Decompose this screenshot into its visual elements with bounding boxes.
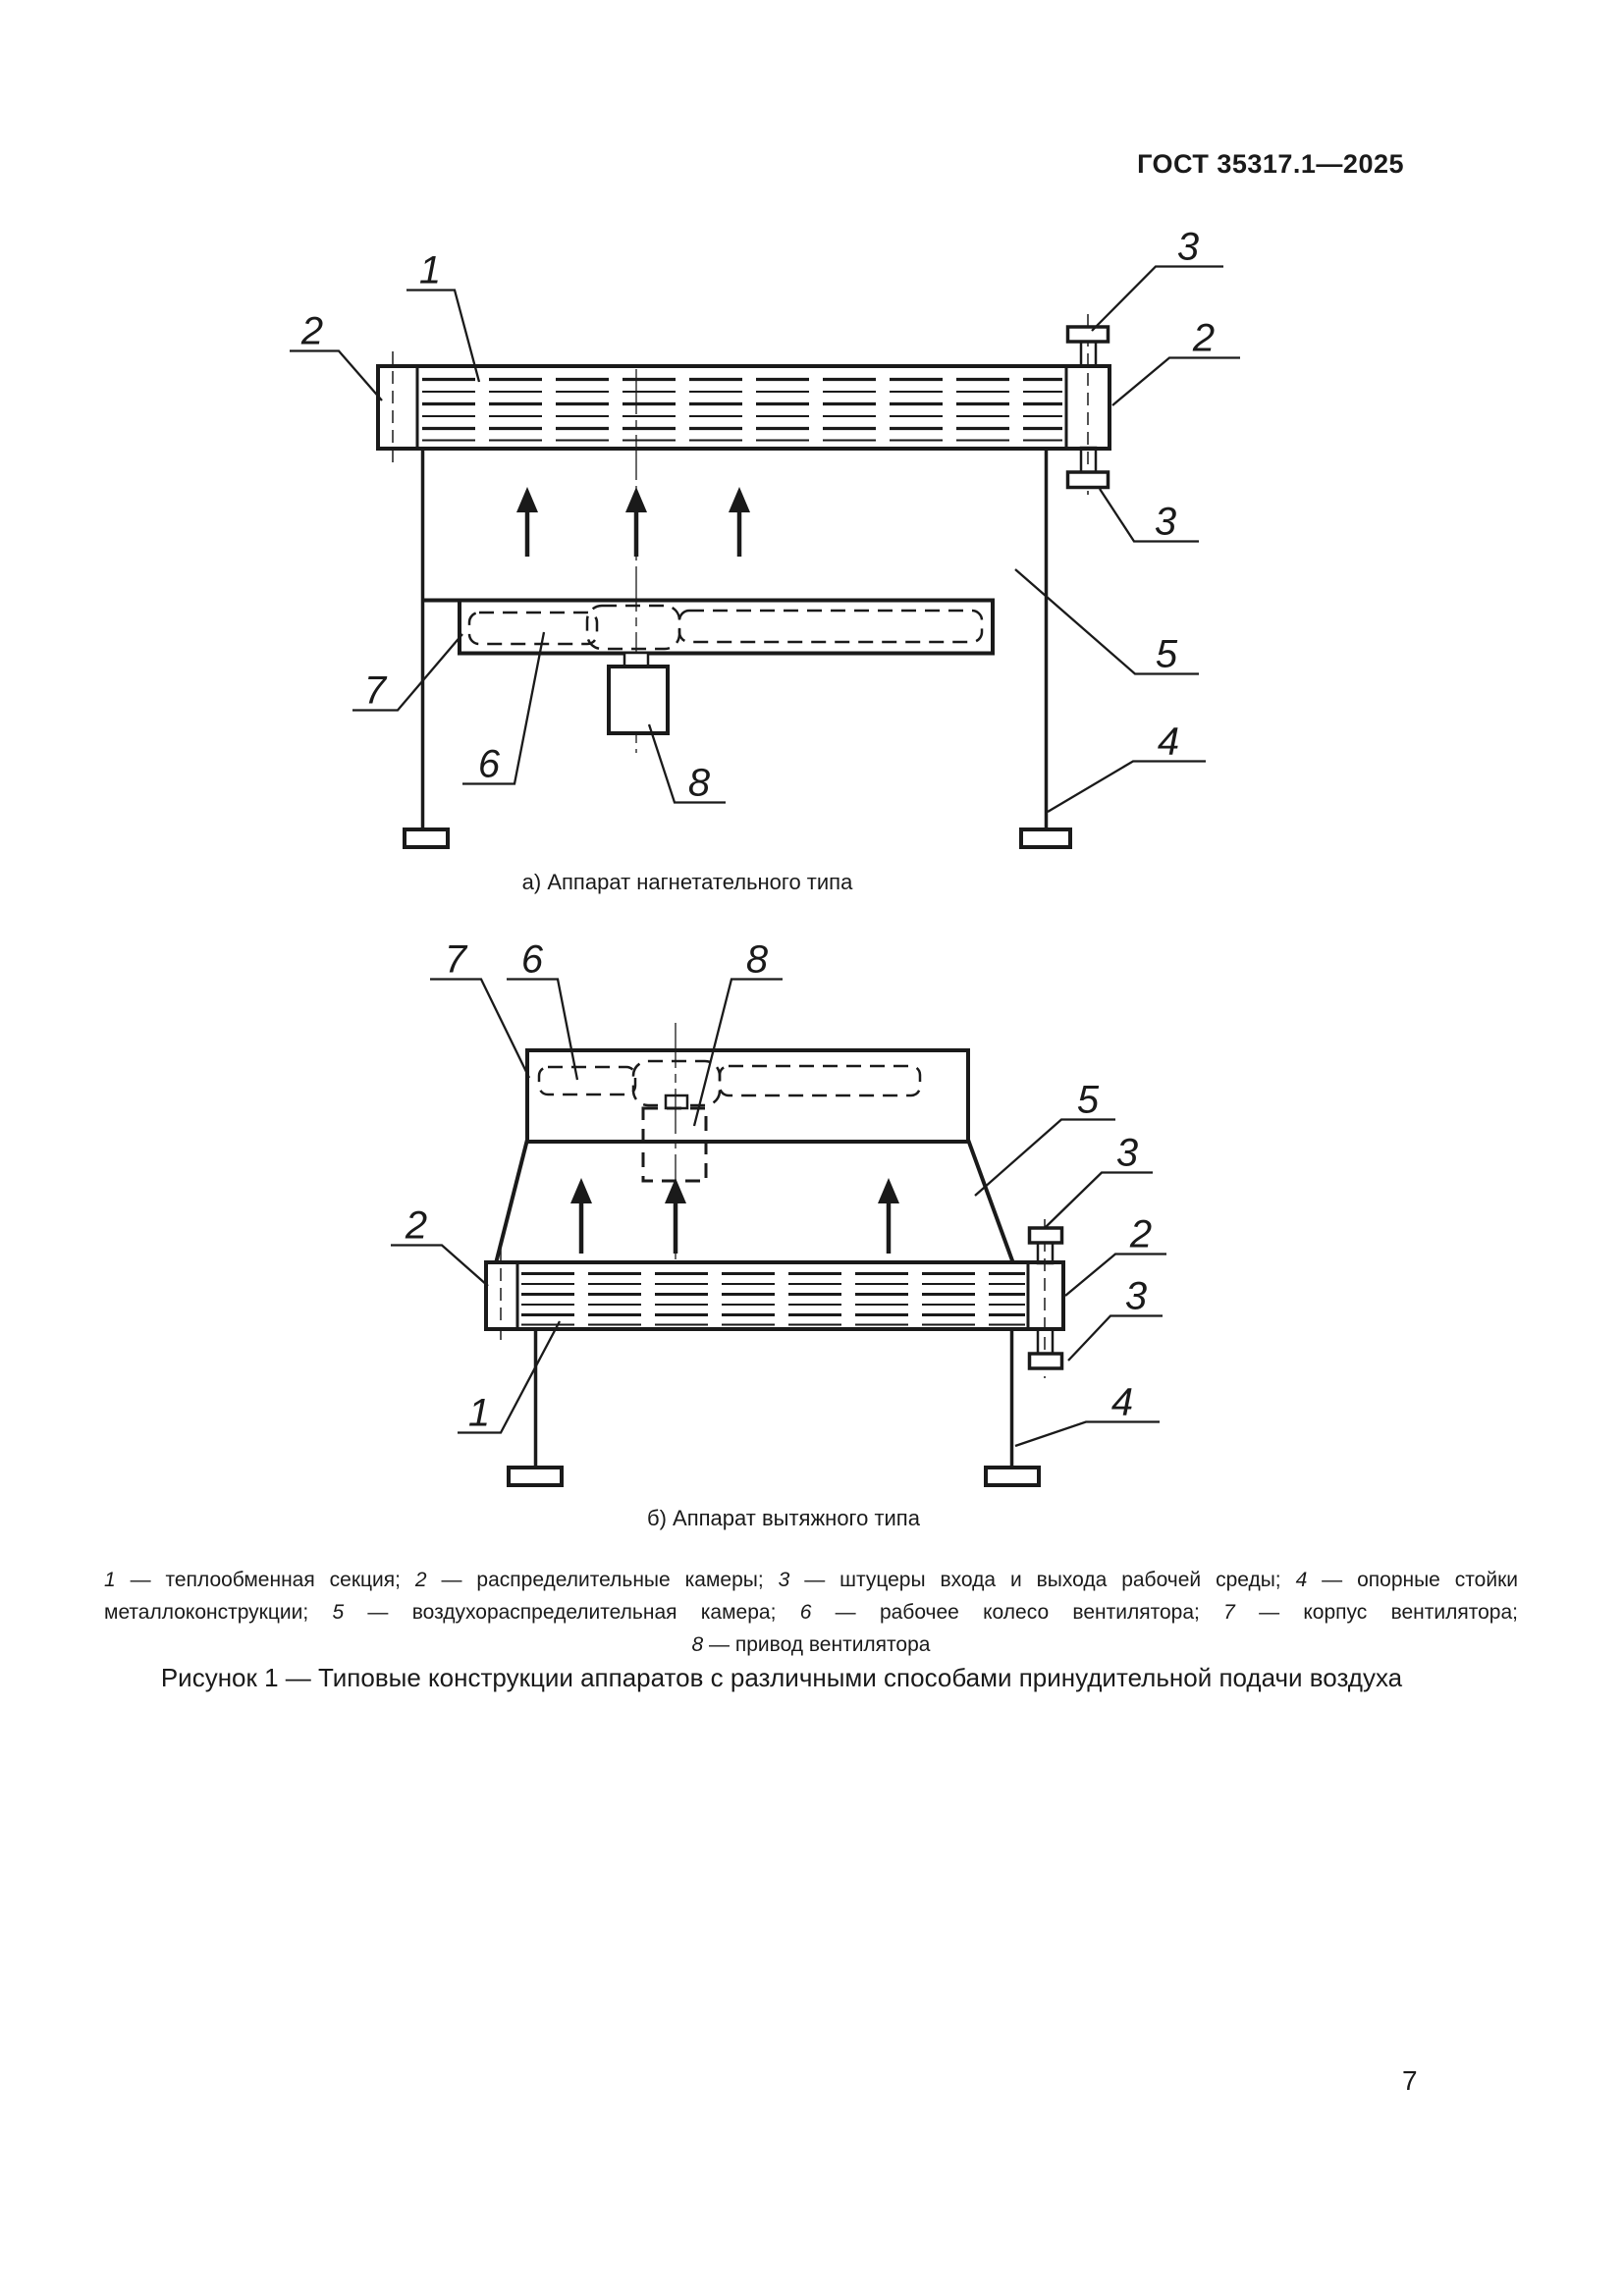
figure-legend: 1 — теплообменная секция; 2 — распредели… bbox=[104, 1564, 1518, 1661]
airflow-arrows bbox=[516, 487, 750, 557]
callout-3-bottom-nozzle: 3 bbox=[1155, 501, 1176, 544]
callout-3-bottom-nozzle: 3 bbox=[1125, 1275, 1147, 1318]
legend-ref-num: 5 bbox=[332, 1601, 344, 1624]
top-nozzle-flange bbox=[1068, 327, 1109, 342]
legend-ref-num: 8 bbox=[692, 1633, 704, 1656]
callout-5-air-chamber: 5 bbox=[1077, 1079, 1100, 1122]
figure-1-diagrams: 1 2 3 2 3 5 4 7 6 8 bbox=[0, 0, 1624, 2296]
drive-coupling bbox=[666, 1095, 687, 1108]
left-foot-pad bbox=[405, 829, 448, 847]
fan-wheel bbox=[469, 606, 982, 649]
callout-leaders-a bbox=[290, 267, 1240, 813]
legend-line-1: 1 — теплообменная секция; 2 — распредели… bbox=[104, 1564, 1518, 1596]
legend-ref-text: — воздухораспределительная камера; bbox=[344, 1601, 800, 1624]
callout-1-section: 1 bbox=[419, 249, 441, 293]
callout-2-right-chamber: 2 bbox=[1129, 1213, 1152, 1256]
legend-ref-text: — теплообменная секция; bbox=[116, 1569, 415, 1591]
figure-caption: Рисунок 1 — Типовые конструкции аппарато… bbox=[75, 1663, 1489, 1693]
bottom-nozzle-flange bbox=[1068, 472, 1109, 488]
legend-line-3: 8 — привод вентилятора bbox=[104, 1629, 1518, 1661]
callout-labels-a: 1 2 3 2 3 5 4 7 6 8 bbox=[300, 226, 1215, 805]
legend-ref-text: — привод вентилятора bbox=[703, 1633, 930, 1656]
legend-line-2: металлоконструкции; 5 — воздухораспредел… bbox=[104, 1596, 1518, 1629]
diagram-a-caption: а) Аппарат нагнетательного типа bbox=[0, 870, 1375, 895]
callout-3-top-nozzle: 3 bbox=[1177, 226, 1199, 269]
legend-ref-text: металлоконструкции; bbox=[104, 1601, 332, 1624]
legend-ref-num: 4 bbox=[1296, 1569, 1308, 1591]
diagram-b-caption: б) Аппарат вытяжного типа bbox=[0, 1506, 1567, 1531]
drive-coupling bbox=[624, 653, 648, 667]
callout-8-fan-drive: 8 bbox=[746, 938, 769, 982]
legend-ref-num: 3 bbox=[779, 1569, 790, 1591]
fan-drive-motor bbox=[609, 667, 668, 733]
callout-2-left-chamber: 2 bbox=[405, 1204, 427, 1248]
airflow-arrows bbox=[570, 1178, 899, 1254]
callout-1-section: 1 bbox=[468, 1392, 490, 1435]
legend-ref-num: 2 bbox=[415, 1569, 427, 1591]
callout-7-fan-casing: 7 bbox=[445, 938, 468, 982]
callout-4-support: 4 bbox=[1158, 721, 1179, 764]
callout-6-fan-wheel: 6 bbox=[478, 743, 501, 786]
legend-ref-text: — рабочее колесо вентилятора; bbox=[811, 1601, 1223, 1624]
callout-4-support: 4 bbox=[1111, 1381, 1133, 1424]
diagram-b: 7 6 8 5 3 2 3 2 1 4 bbox=[391, 938, 1166, 1486]
callout-8-fan-drive: 8 bbox=[688, 762, 711, 805]
legend-ref-text: — распределительные камеры; bbox=[427, 1569, 779, 1591]
callout-6-fan-wheel: 6 bbox=[521, 938, 544, 982]
tube-bundle bbox=[422, 380, 1062, 441]
document-page: ГОСТ 35317.1—2025 bbox=[0, 0, 1624, 2296]
callout-3-top-nozzle: 3 bbox=[1116, 1132, 1138, 1175]
air-chamber-right-wall bbox=[968, 1140, 1013, 1263]
bottom-nozzle-flange bbox=[1030, 1354, 1062, 1368]
callout-5-air-chamber: 5 bbox=[1156, 633, 1178, 676]
callout-2-right-chamber: 2 bbox=[1192, 317, 1215, 360]
legend-ref-num: 6 bbox=[800, 1601, 812, 1624]
page-number: 7 bbox=[1402, 2065, 1418, 2097]
callout-7-fan-casing: 7 bbox=[364, 669, 388, 713]
top-nozzle-flange bbox=[1030, 1228, 1062, 1243]
right-foot-pad bbox=[1021, 829, 1070, 847]
fan-wheel bbox=[539, 1061, 920, 1105]
air-chamber-left-wall bbox=[496, 1140, 527, 1263]
callout-2-left-chamber: 2 bbox=[300, 310, 323, 353]
legend-ref-num: 7 bbox=[1223, 1601, 1235, 1624]
legend-ref-text: — штуцеры входа и выхода рабочей среды; bbox=[789, 1569, 1295, 1591]
legend-ref-num: 1 bbox=[104, 1569, 116, 1591]
diagram-a: 1 2 3 2 3 5 4 7 6 8 bbox=[290, 226, 1240, 848]
legend-ref-text: — опорные стойки bbox=[1307, 1569, 1518, 1591]
right-foot-pad bbox=[986, 1468, 1039, 1485]
left-foot-pad bbox=[509, 1468, 562, 1485]
legend-ref-text: — корпус вентилятора; bbox=[1235, 1601, 1518, 1624]
tube-bundle bbox=[521, 1274, 1025, 1325]
